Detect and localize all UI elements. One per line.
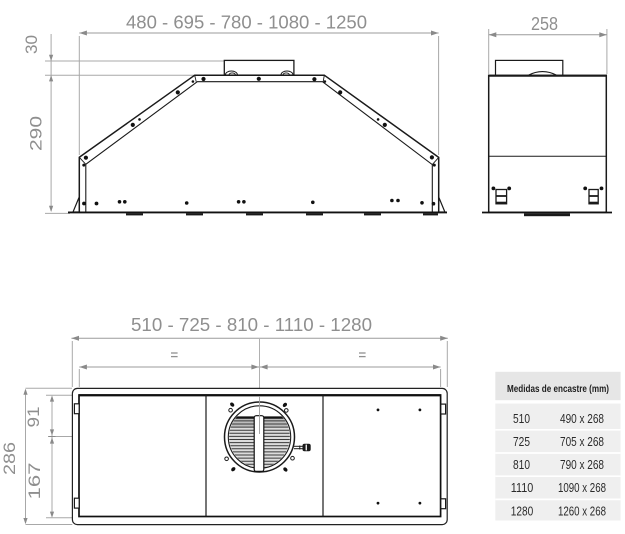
svg-text:1110: 1110 [511,480,534,495]
svg-text:480 - 695 - 780 - 1080 - 1250: 480 - 695 - 780 - 1080 - 1250 [126,13,367,33]
svg-text:510: 510 [513,411,530,426]
svg-text:790 x 268: 790 x 268 [560,457,604,472]
svg-text:258: 258 [531,14,558,34]
svg-text:490 x 268: 490 x 268 [560,411,604,426]
svg-text:1260 x 268: 1260 x 268 [558,503,606,518]
svg-text:Medidas de encastre (mm): Medidas de encastre (mm) [507,383,609,395]
svg-text:705 x 268: 705 x 268 [560,434,604,449]
svg-text:510 - 725 - 810 - 1110 - 1280: 510 - 725 - 810 - 1110 - 1280 [131,315,372,335]
svg-text:810: 810 [513,457,530,472]
svg-text:1280: 1280 [511,503,534,518]
svg-text:1090 x 268: 1090 x 268 [558,480,606,495]
svg-text:725: 725 [513,434,530,449]
svg-text:91: 91 [24,407,43,428]
svg-text:286: 286 [0,442,19,475]
svg-text:290: 290 [27,116,46,151]
svg-text:30: 30 [22,35,41,54]
svg-text:167: 167 [25,463,44,500]
